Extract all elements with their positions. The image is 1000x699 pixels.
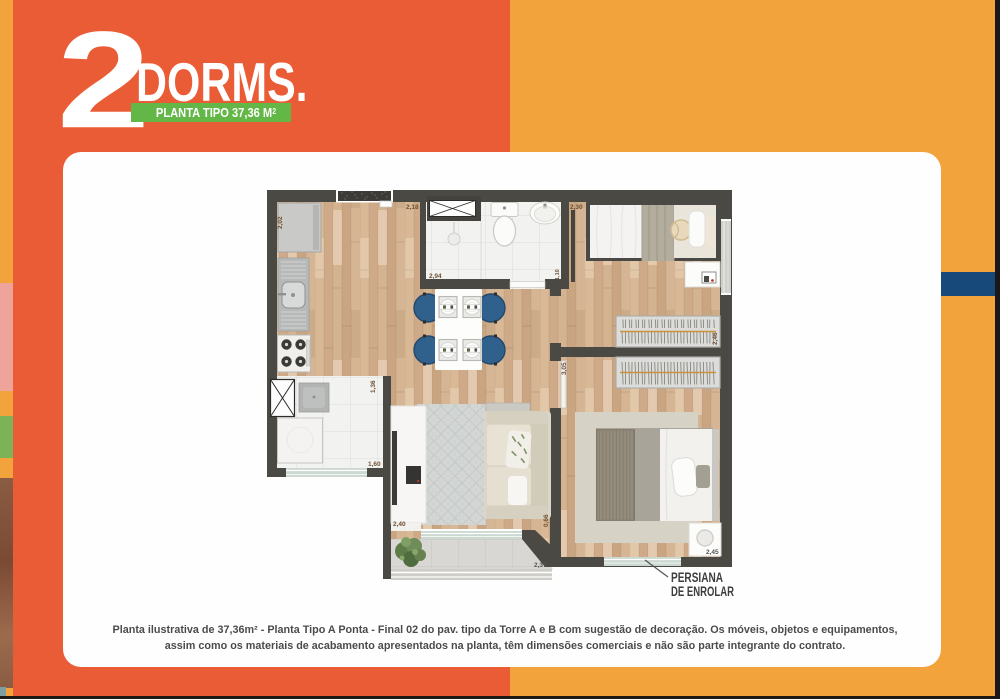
- svg-text:DE ENROLAR: DE ENROLAR: [671, 584, 734, 599]
- svg-text:2,02: 2,02: [277, 216, 284, 229]
- svg-text:PERSIANA: PERSIANA: [671, 570, 723, 585]
- svg-text:0,66: 0,66: [543, 514, 550, 527]
- svg-text:2,40: 2,40: [393, 521, 406, 528]
- svg-text:2,45: 2,45: [706, 549, 719, 556]
- svg-text:3,05: 3,05: [561, 362, 568, 375]
- svg-text:1,36: 1,36: [370, 380, 377, 393]
- svg-text:1,60: 1,60: [368, 461, 381, 468]
- svg-text:1,10: 1,10: [555, 269, 561, 280]
- svg-text:2,94: 2,94: [429, 273, 442, 280]
- svg-text:2,46: 2,46: [712, 332, 719, 345]
- svg-text:2,37: 2,37: [534, 562, 547, 569]
- svg-text:2,18: 2,18: [406, 204, 419, 211]
- svg-text:2,30: 2,30: [570, 204, 583, 211]
